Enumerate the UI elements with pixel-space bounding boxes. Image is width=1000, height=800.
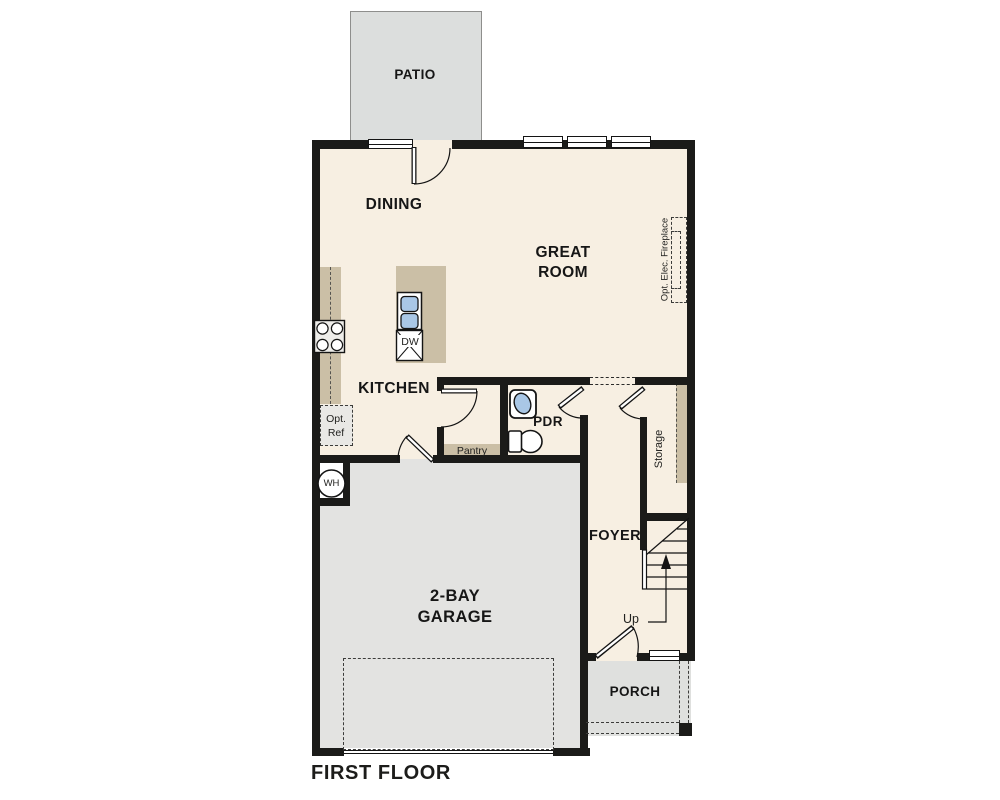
window-mullion [612, 142, 650, 143]
porch-edge-dash [679, 661, 680, 723]
pantry-label: Pantry [444, 445, 500, 457]
garage-door-panel [344, 750, 553, 755]
window [368, 139, 413, 149]
main-floor [316, 144, 691, 384]
front-door-opening [596, 653, 637, 661]
floor-plan: PATIO DINING GREAT ROOM KITCHEN PDR FOYE… [0, 0, 1000, 800]
up-label: Up [620, 612, 642, 626]
window-mullion [568, 142, 606, 143]
counter-centerline [330, 267, 331, 404]
patio-label: PATIO [390, 66, 440, 84]
window [567, 136, 607, 148]
kitchen-label: KITCHEN [356, 379, 432, 399]
dining-label: DINING [360, 195, 428, 215]
wall-segment [437, 377, 590, 385]
optional-fireplace-label: Opt. Elec. Fireplace [660, 205, 671, 315]
porch-label: PORCH [608, 683, 662, 701]
porch-edge-dash [688, 661, 689, 723]
wall-segment [687, 140, 695, 661]
window [523, 136, 563, 148]
water-heater-label: WH [318, 478, 345, 489]
wall-segment [312, 498, 350, 506]
garage-door-apron [343, 658, 554, 750]
window-mullion [650, 656, 679, 657]
wall-segment [312, 140, 320, 756]
optional-fireplace-firebox [671, 231, 681, 289]
porch-edge-dash [586, 733, 689, 734]
window [611, 136, 651, 148]
storage-shelf [676, 383, 687, 483]
kitchen-island [396, 266, 446, 363]
wall-segment [437, 377, 444, 391]
powder-room-label: PDR [531, 413, 565, 431]
wall-segment [640, 513, 695, 521]
cased-opening [590, 377, 635, 385]
garage-label: 2-BAY GARAGE [410, 586, 500, 629]
wall-segment [640, 417, 647, 550]
optional-refrigerator-label: Opt. Ref [322, 413, 350, 440]
great-room-label: GREAT ROOM [528, 243, 598, 283]
wall-segment [580, 415, 588, 756]
window-mullion [524, 142, 562, 143]
window-mullion [369, 144, 412, 145]
dishwasher-label: DW [397, 336, 423, 348]
window [649, 650, 680, 661]
storage-label: Storage [653, 424, 665, 474]
foyer-label: FOYER [589, 527, 639, 546]
page-title: FIRST FLOOR [311, 762, 451, 785]
wall-segment [312, 455, 400, 463]
porch-edge-dash [586, 722, 679, 723]
wall-segment [635, 377, 687, 385]
wall-segment [500, 377, 508, 463]
porch-post [679, 723, 692, 736]
